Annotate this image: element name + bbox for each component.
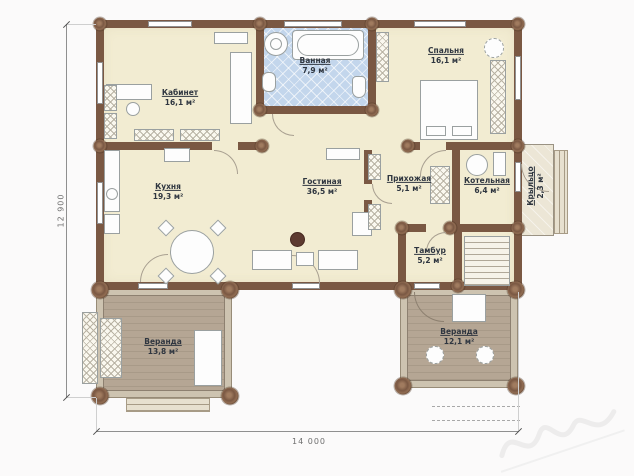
room-name: Веранда	[440, 327, 478, 337]
plant	[426, 346, 444, 364]
room-name: Тамбур	[414, 246, 446, 256]
stove-fireplace	[290, 232, 305, 247]
wall	[96, 20, 104, 290]
veranda-sofa	[194, 330, 222, 386]
room-area: 19,3 м²	[153, 192, 184, 201]
room-name: Веранда	[144, 337, 182, 347]
log-post	[256, 140, 269, 153]
built-in-cabinet	[134, 129, 174, 141]
room-label-veranda-right: Веранда 12,1 м²	[440, 327, 478, 347]
boiler	[466, 154, 488, 176]
hall-wardrobe	[368, 154, 381, 180]
extension-line	[66, 397, 96, 398]
extension-line	[66, 24, 96, 25]
window	[284, 21, 342, 27]
room-area: 16,1 м²	[165, 98, 196, 107]
wardrobe	[490, 60, 506, 134]
log-post	[452, 280, 465, 293]
room-label-porch: Крыльцо 2,3 м²	[526, 166, 546, 205]
room-name: Кабинет	[162, 88, 198, 98]
window	[97, 182, 103, 224]
boiler-equipment	[493, 152, 506, 176]
room-label-kitchen: Кухня 19,3 м²	[153, 182, 184, 202]
veranda-chair	[452, 294, 486, 322]
window	[515, 56, 521, 100]
office-sofa	[230, 52, 252, 124]
door-opening	[292, 283, 320, 289]
veranda-post	[508, 378, 525, 395]
log-post	[366, 104, 379, 117]
room-area: 16,1 м²	[431, 56, 462, 65]
room-name: Крыльцо	[526, 166, 536, 205]
dimension-height-label: 12 900	[57, 194, 66, 228]
room-label-boiler-room: Котельная 6,4 м²	[464, 176, 510, 196]
extension-line	[96, 398, 97, 432]
wall	[452, 150, 460, 232]
room-area: 36,5 м²	[307, 187, 338, 196]
window	[414, 21, 466, 27]
room-label-tambour: Тамбур 5,2 м²	[414, 246, 446, 266]
stove	[164, 148, 190, 162]
log-post	[512, 140, 525, 153]
veranda-post	[395, 282, 412, 299]
kitchen-sink	[106, 188, 118, 200]
log-post	[396, 222, 409, 235]
veranda-table	[100, 318, 122, 378]
room-label-veranda-left: Веранда 13,8 м²	[144, 337, 182, 357]
log-post	[512, 18, 525, 31]
built-in-cabinet	[180, 129, 220, 141]
built-in-cabinet	[104, 113, 117, 139]
veranda-bench	[82, 312, 98, 384]
room-name: Ванная	[299, 56, 330, 66]
room-name: Кухня	[153, 182, 184, 192]
storage-shelves	[464, 236, 510, 286]
sofa	[252, 250, 292, 270]
veranda-post	[92, 388, 109, 405]
wall	[96, 142, 212, 150]
veranda-post	[92, 282, 109, 299]
coffee-table	[296, 252, 314, 266]
room-area: 5,2 м²	[417, 256, 442, 265]
toilet	[352, 76, 366, 98]
room-label-bedroom: Спальня 16,1 м²	[428, 46, 464, 66]
wall	[368, 20, 376, 114]
log-post	[254, 18, 267, 31]
pillow	[426, 126, 446, 136]
veranda-post	[508, 282, 525, 299]
room-label-hallway: Прихожая 5,1 м²	[387, 174, 431, 194]
kitchen-counter	[104, 150, 120, 212]
room-area: 13,8 м²	[148, 347, 179, 356]
wall	[256, 106, 374, 114]
room-name: Прихожая	[387, 174, 431, 184]
room-name: Спальня	[428, 46, 464, 56]
room-area: 7,9 м²	[302, 66, 327, 75]
window	[97, 62, 103, 104]
watermark-signature	[491, 396, 634, 476]
desk-chair	[126, 102, 140, 116]
dimension-width-label: 14 000	[292, 437, 326, 446]
plant	[476, 346, 494, 364]
room-area: 12,1 м²	[444, 337, 475, 346]
wardrobe	[376, 32, 389, 82]
room-label-office: Кабинет 16,1 м²	[162, 88, 198, 108]
dimension-line-left	[66, 24, 67, 398]
door-opening	[414, 283, 440, 289]
hall-wardrobe	[430, 166, 450, 204]
veranda-steps	[126, 398, 210, 412]
built-in-cabinet	[104, 85, 117, 111]
veranda-post	[222, 388, 239, 405]
sofa	[318, 250, 358, 270]
wall	[256, 20, 264, 114]
door-opening	[515, 162, 521, 192]
dimension-dash	[432, 406, 520, 407]
log-post	[402, 140, 415, 153]
fridge	[104, 214, 120, 234]
veranda-post	[222, 282, 239, 299]
room-label-living-room: Гостиная 36,5 м²	[302, 177, 341, 197]
room-area: 6,4 м²	[474, 186, 499, 195]
washing-machine-drum	[270, 38, 282, 50]
room-area: 5,1 м²	[396, 184, 421, 193]
hall-wardrobe	[368, 204, 381, 230]
dining-table	[170, 230, 214, 274]
window	[148, 21, 192, 27]
floor-plan: 12 900 14 000 Кабинет 16,1 м² Ванная 7,9…	[0, 0, 634, 476]
log-post	[254, 104, 267, 117]
log-post	[512, 222, 525, 235]
log-post	[366, 18, 379, 31]
room-area: 2,3 м²	[536, 173, 545, 198]
dimension-line-bottom	[96, 431, 519, 432]
room-label-bathroom: Ванная 7,9 м²	[299, 56, 330, 76]
bathtub-inner	[297, 34, 359, 56]
porch-steps	[554, 150, 568, 234]
tv-unit	[326, 148, 360, 160]
pillow	[452, 126, 472, 136]
plant	[484, 38, 504, 58]
veranda-post	[395, 378, 412, 395]
sink	[262, 72, 276, 92]
room-name: Гостиная	[302, 177, 341, 187]
room-name: Котельная	[464, 176, 510, 186]
door-opening	[138, 283, 168, 289]
console-table	[214, 32, 248, 44]
